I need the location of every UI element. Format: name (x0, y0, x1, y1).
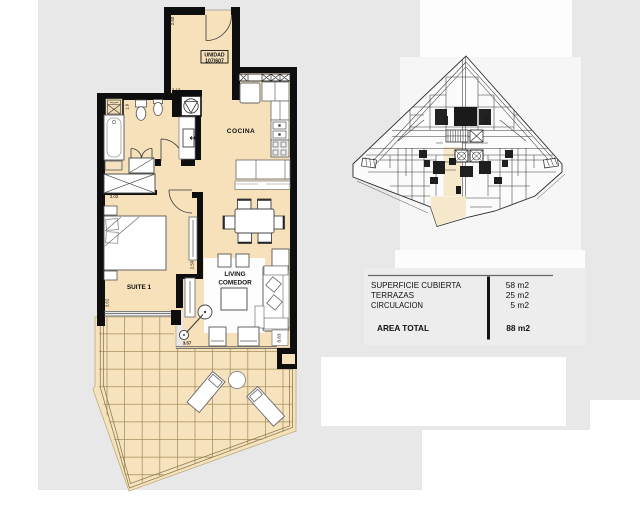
svg-text:2.13: 2.13 (172, 88, 181, 93)
svg-text:88 m2: 88 m2 (506, 323, 530, 333)
svg-text:25 m2: 25 m2 (506, 290, 530, 300)
svg-text:SUITE 1: SUITE 1 (127, 284, 152, 291)
svg-text:58 m2: 58 m2 (506, 280, 530, 290)
svg-text:1.9: 1.9 (125, 103, 130, 109)
svg-text:107/607: 107/607 (205, 58, 224, 64)
svg-text:LIVING: LIVING (224, 271, 245, 278)
svg-text:3.57: 3.57 (183, 341, 192, 346)
svg-text:3.02: 3.02 (110, 194, 119, 199)
svg-text:3.62: 3.62 (105, 298, 110, 307)
svg-text:CIRCULACION: CIRCULACION (371, 300, 423, 310)
svg-text:AREA TOTAL: AREA TOTAL (377, 323, 429, 333)
svg-text:COMEDOR: COMEDOR (218, 280, 252, 287)
svg-text:TERRAZAS: TERRAZAS (371, 290, 414, 300)
svg-text:8.63: 8.63 (277, 333, 282, 342)
svg-text:SUPERFICIE CUBIERTA: SUPERFICIE CUBIERTA (371, 280, 461, 290)
svg-text:COCINA: COCINA (227, 128, 255, 135)
svg-text:2.50: 2.50 (170, 16, 175, 25)
svg-text:2.59: 2.59 (190, 260, 195, 269)
svg-text:5 m2: 5 m2 (510, 300, 529, 310)
